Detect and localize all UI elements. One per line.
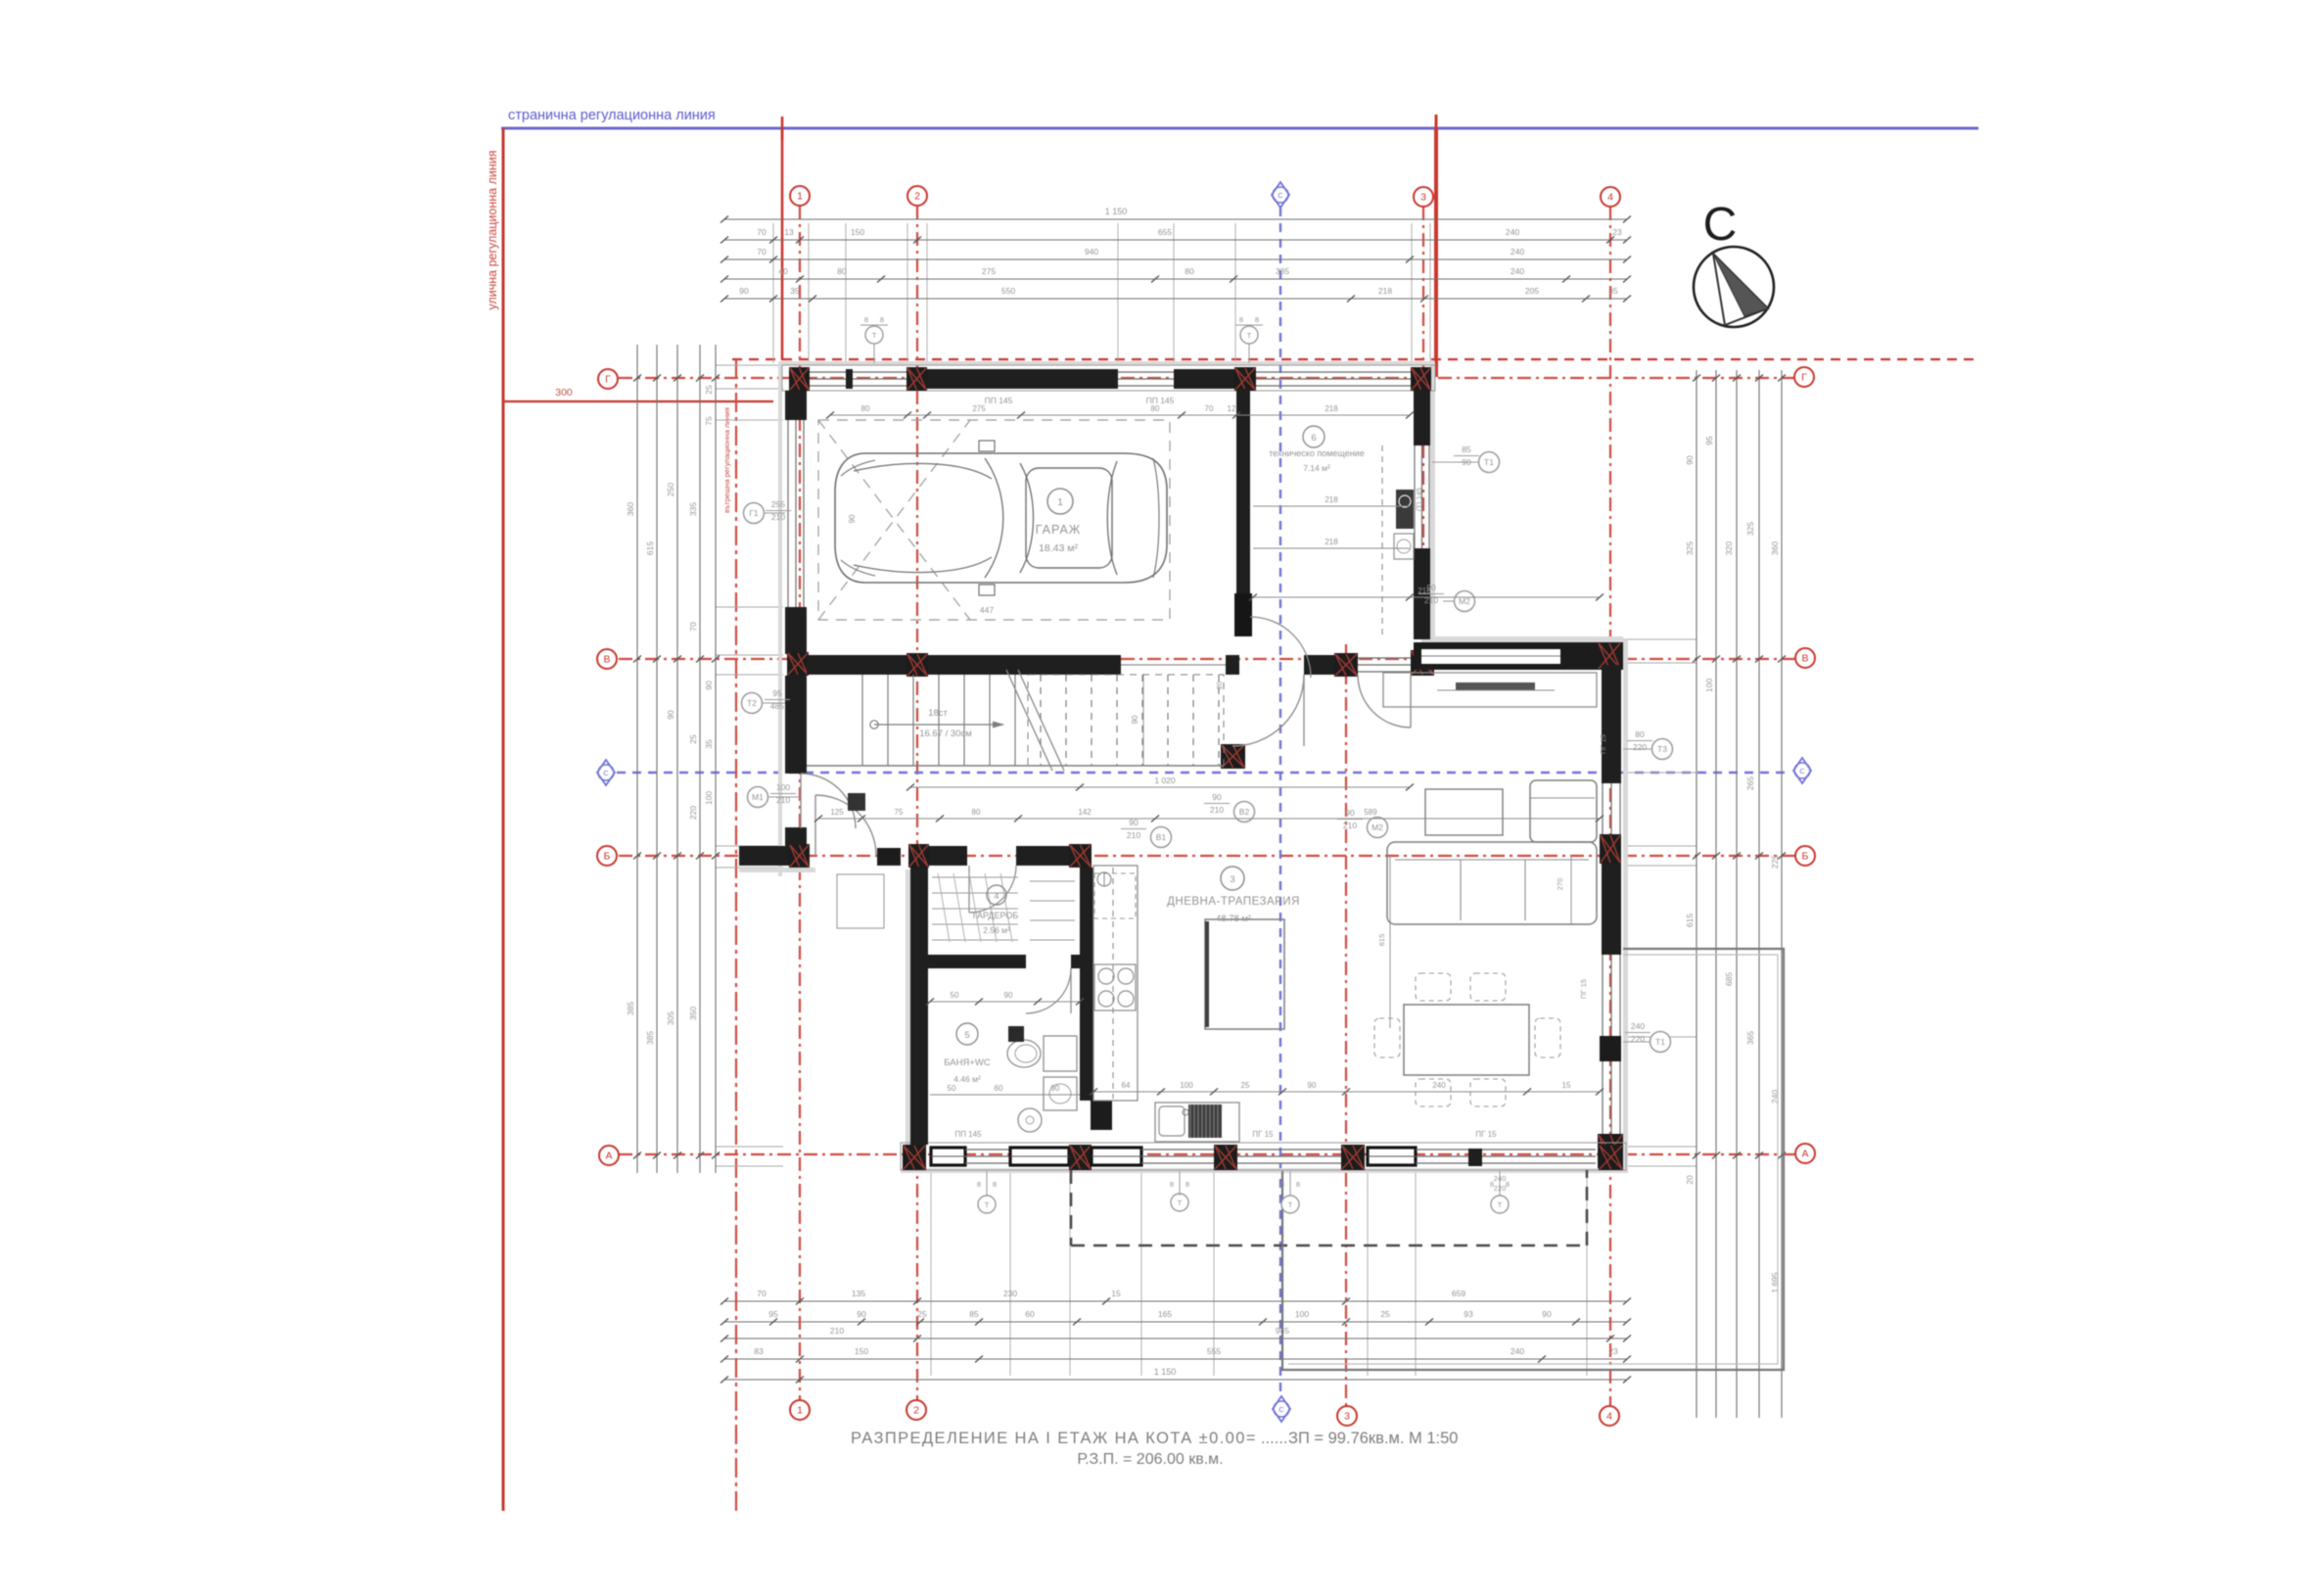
svg-text:16.67 / 30см: 16.67 / 30см [919, 728, 972, 739]
svg-text:659: 659 [1452, 1289, 1465, 1298]
svg-text:240: 240 [1506, 227, 1519, 237]
svg-text:210: 210 [1127, 830, 1140, 840]
svg-text:35: 35 [1608, 286, 1618, 296]
svg-text:80: 80 [837, 266, 847, 276]
svg-text:90: 90 [848, 514, 857, 523]
svg-text:4: 4 [1607, 192, 1613, 204]
svg-text:615: 615 [1685, 914, 1695, 927]
svg-text:3: 3 [1344, 1411, 1350, 1423]
svg-text:75: 75 [895, 808, 904, 817]
svg-text:А: А [1801, 1149, 1808, 1160]
svg-text:70: 70 [757, 1289, 767, 1298]
svg-text:60: 60 [995, 1084, 1003, 1093]
svg-text:8: 8 [880, 315, 884, 324]
svg-text:В2: В2 [1239, 807, 1250, 817]
svg-text:техническо помещение: техническо помещение [1269, 448, 1364, 458]
svg-text:550: 550 [1001, 286, 1015, 296]
svg-text:ДНЕВНА-ТРАПЕЗАРИЯ: ДНЕВНА-ТРАПЕЗАРИЯ [1167, 896, 1300, 908]
svg-text:25: 25 [704, 385, 714, 395]
svg-text:ПП 145: ПП 145 [954, 1130, 982, 1139]
svg-text:8: 8 [864, 315, 868, 324]
svg-text:64: 64 [1122, 1081, 1131, 1090]
svg-text:210: 210 [1343, 821, 1357, 830]
svg-text:Т: Т [1178, 1198, 1183, 1207]
svg-text:Г: Г [605, 374, 611, 386]
svg-text:8: 8 [1239, 315, 1243, 324]
svg-text:8: 8 [993, 1180, 997, 1189]
svg-text:142: 142 [1078, 808, 1092, 817]
svg-text:218: 218 [1378, 286, 1392, 296]
svg-text:В1: В1 [1156, 832, 1167, 842]
svg-text:90: 90 [1212, 792, 1222, 802]
svg-text:70: 70 [688, 622, 698, 632]
svg-text:М2: М2 [1459, 596, 1470, 606]
svg-text:23: 23 [1612, 227, 1622, 237]
svg-text:240: 240 [1494, 1174, 1507, 1183]
svg-text:50: 50 [948, 1084, 956, 1093]
svg-text:Т: Т [1288, 1200, 1293, 1209]
svg-text:С: С [1278, 1405, 1284, 1414]
svg-text:325: 325 [1745, 522, 1755, 536]
svg-text:7.14 м²: 7.14 м² [1303, 463, 1330, 473]
svg-text:90: 90 [739, 286, 749, 296]
svg-text:270: 270 [1556, 878, 1564, 891]
svg-text:95: 95 [768, 1309, 778, 1319]
svg-text:ЗП = 99.76кв.м. М 1:50: ЗП = 99.76кв.м. М 1:50 [1288, 1430, 1458, 1447]
svg-text:80: 80 [1151, 404, 1160, 413]
svg-text:4.46 м²: 4.46 м² [953, 1074, 981, 1084]
svg-text:70: 70 [757, 247, 767, 257]
svg-text:90: 90 [1308, 1081, 1317, 1090]
svg-text:90: 90 [704, 681, 714, 690]
svg-text:20: 20 [1685, 1175, 1695, 1185]
svg-text:335: 335 [688, 502, 698, 516]
svg-text:275: 275 [982, 266, 996, 276]
svg-text:240: 240 [1432, 1081, 1446, 1090]
svg-text:20: 20 [1215, 681, 1224, 689]
svg-text:25: 25 [1380, 1309, 1390, 1319]
svg-text:2: 2 [914, 191, 920, 203]
svg-text:8: 8 [1296, 1180, 1300, 1189]
svg-text:1 150: 1 150 [1154, 1367, 1177, 1377]
svg-text:В: В [1801, 653, 1808, 665]
svg-text:218: 218 [1418, 587, 1431, 595]
svg-text:ГАРАЖ: ГАРАЖ [1036, 523, 1082, 537]
svg-text:2: 2 [913, 1405, 919, 1417]
svg-text:48.78 м²: 48.78 м² [1216, 914, 1251, 924]
svg-text:15: 15 [1111, 1289, 1121, 1298]
svg-text:230: 230 [1003, 1289, 1017, 1298]
svg-text:240: 240 [1631, 1021, 1645, 1031]
svg-text:150: 150 [851, 227, 864, 237]
svg-text:365: 365 [1745, 1031, 1755, 1045]
svg-text:220: 220 [1633, 742, 1647, 752]
svg-text:25: 25 [1241, 1081, 1250, 1090]
svg-text:90: 90 [666, 710, 675, 720]
svg-text:250: 250 [666, 483, 675, 496]
svg-text:555: 555 [1207, 1346, 1221, 1356]
svg-text:360: 360 [1770, 541, 1780, 555]
svg-text:Т: Т [1498, 1200, 1503, 1209]
svg-text:улична регулационна линия: улична регулационна линия [486, 150, 499, 309]
svg-text:25: 25 [917, 1309, 927, 1319]
svg-text:13: 13 [784, 227, 794, 237]
svg-text:С: С [603, 769, 609, 777]
svg-text:35: 35 [704, 739, 714, 749]
svg-text:90: 90 [1004, 991, 1013, 1000]
svg-text:5: 5 [964, 1030, 969, 1041]
svg-text:225: 225 [1770, 855, 1780, 868]
svg-text:940: 940 [1085, 247, 1098, 257]
svg-text:1 020: 1 020 [1154, 775, 1176, 785]
svg-text:8: 8 [1170, 1180, 1174, 1189]
svg-text:210: 210 [1424, 595, 1438, 605]
svg-text:1: 1 [797, 1405, 803, 1417]
svg-text:60: 60 [1025, 1309, 1035, 1319]
svg-text:23: 23 [1608, 1346, 1618, 1356]
svg-text:С: С [1799, 767, 1805, 775]
svg-text:100: 100 [1704, 679, 1714, 692]
svg-text:615: 615 [1377, 934, 1386, 947]
svg-text:255: 255 [771, 499, 785, 509]
svg-text:ПП 145: ПП 145 [985, 396, 1013, 405]
svg-text:385: 385 [626, 1002, 635, 1015]
svg-text:220: 220 [1494, 1184, 1507, 1193]
svg-text:ПГ 15: ПГ 15 [1579, 979, 1588, 999]
svg-text:240: 240 [1511, 247, 1524, 257]
svg-text:240: 240 [1511, 266, 1524, 276]
svg-text:447: 447 [980, 605, 994, 615]
svg-text:25: 25 [688, 734, 698, 744]
svg-text:12: 12 [1228, 404, 1236, 413]
svg-text:Б: Б [604, 851, 611, 863]
svg-text:93: 93 [1464, 1309, 1473, 1319]
svg-text:320: 320 [1724, 541, 1734, 555]
svg-text:325: 325 [1685, 541, 1695, 555]
svg-text:40: 40 [778, 266, 788, 276]
svg-text:85: 85 [1462, 445, 1471, 454]
svg-text:90: 90 [1542, 1309, 1552, 1319]
svg-text:165: 165 [1158, 1309, 1172, 1319]
svg-text:Г1: Г1 [749, 508, 759, 518]
svg-text:100: 100 [1180, 1081, 1193, 1090]
svg-text:Т: Т [985, 1200, 990, 1209]
svg-text:90: 90 [1129, 818, 1139, 827]
svg-text:1: 1 [1057, 496, 1063, 508]
svg-text:ПГ 15: ПГ 15 [1475, 1130, 1497, 1139]
svg-text:655: 655 [1158, 227, 1172, 237]
svg-text:4: 4 [1606, 1411, 1612, 1423]
svg-text:90: 90 [1345, 808, 1355, 818]
svg-text:РАЗПРЕДЕЛЕНИЕ НА I ЕТАЖ НА КОТ: РАЗПРЕДЕЛЕНИЕ НА I ЕТАЖ НА КОТА ±0.00= [851, 1430, 1257, 1447]
svg-text:218: 218 [1325, 404, 1338, 413]
svg-text:Т2: Т2 [747, 698, 757, 708]
svg-text:3: 3 [1230, 874, 1234, 885]
svg-text:100: 100 [776, 782, 790, 792]
svg-text:Р.З.П. = 206.00 кв.м.: Р.З.П. = 206.00 кв.м. [1077, 1451, 1223, 1468]
svg-text:странична регулационна линия: странична регулационна линия [508, 108, 716, 123]
svg-text:275: 275 [972, 404, 986, 413]
svg-text:615: 615 [645, 541, 655, 555]
svg-text:83: 83 [754, 1346, 764, 1356]
svg-text:100: 100 [1295, 1309, 1309, 1319]
svg-text:125: 125 [830, 808, 844, 817]
svg-text:218: 218 [1325, 538, 1338, 546]
svg-text:М1: М1 [752, 792, 764, 802]
svg-text:Т3: Т3 [1657, 744, 1667, 754]
svg-text:205: 205 [1525, 286, 1539, 296]
svg-text:БАНЯ+WC: БАНЯ+WC [944, 1057, 991, 1068]
svg-text:100: 100 [704, 791, 714, 805]
svg-text:С: С [1703, 199, 1738, 251]
svg-text:Т: Т [1247, 331, 1252, 340]
svg-text:С: С [1278, 191, 1283, 200]
svg-text:80: 80 [972, 808, 981, 817]
svg-text:90: 90 [1685, 455, 1695, 465]
svg-text:80: 80 [861, 404, 870, 413]
svg-text:4: 4 [994, 891, 999, 901]
svg-text:75: 75 [704, 416, 714, 426]
svg-text:8: 8 [1255, 315, 1259, 324]
svg-text:90: 90 [1051, 1084, 1060, 1093]
svg-text:135: 135 [852, 1289, 865, 1298]
svg-text:18ст: 18ст [928, 708, 948, 719]
svg-text:ПГ 15: ПГ 15 [1252, 1130, 1274, 1139]
svg-text:Т1: Т1 [1655, 1037, 1665, 1047]
svg-text:360: 360 [626, 502, 635, 516]
svg-text:8: 8 [1506, 1180, 1510, 1189]
svg-text:90: 90 [857, 1309, 866, 1319]
svg-text:300: 300 [555, 387, 573, 399]
svg-text:......: ...... [1261, 1430, 1288, 1447]
svg-text:150: 150 [855, 1346, 868, 1356]
svg-text:265: 265 [1745, 776, 1755, 790]
svg-text:80: 80 [1185, 266, 1194, 276]
svg-text:2.56 м²: 2.56 м² [983, 925, 1010, 935]
svg-text:Т1: Т1 [1484, 457, 1494, 467]
svg-text:240: 240 [1511, 1346, 1524, 1356]
svg-text:335: 335 [1276, 266, 1289, 276]
svg-text:18.43 м²: 18.43 м² [1039, 542, 1078, 554]
svg-text:8: 8 [977, 1180, 981, 1189]
svg-text:8: 8 [1280, 1180, 1284, 1189]
svg-text:8: 8 [1185, 1180, 1189, 1189]
svg-text:1 150: 1 150 [1105, 207, 1128, 216]
svg-text:685: 685 [1724, 972, 1734, 986]
svg-text:6: 6 [1311, 433, 1316, 444]
svg-text:Т: Т [872, 331, 877, 340]
svg-text:Б: Б [1802, 851, 1809, 863]
svg-text:95: 95 [1704, 436, 1714, 446]
svg-text:ГАРДЕРОБ: ГАРДЕРОБ [973, 911, 1019, 920]
svg-text:В: В [603, 654, 610, 666]
svg-text:70: 70 [757, 227, 767, 237]
svg-text:3: 3 [1420, 192, 1426, 204]
svg-text:50: 50 [951, 991, 959, 1000]
svg-text:80: 80 [1635, 729, 1645, 739]
svg-text:М2: М2 [1371, 822, 1383, 832]
svg-text:(Т) 145: (Т) 145 [1415, 488, 1423, 511]
svg-text:15: 15 [1562, 1081, 1571, 1090]
svg-text:70: 70 [1205, 404, 1214, 413]
svg-text:ПГ 15: ПГ 15 [1599, 734, 1607, 754]
svg-text:вътрешна регулационна линия: вътрешна регулационна линия [722, 407, 731, 513]
svg-text:90: 90 [1131, 715, 1139, 724]
svg-text:35: 35 [790, 286, 800, 296]
svg-text:305: 305 [666, 1011, 675, 1025]
svg-text:218: 218 [1325, 495, 1338, 504]
svg-text:385: 385 [645, 1031, 655, 1045]
svg-text:210: 210 [1210, 805, 1224, 815]
svg-text:210: 210 [830, 1326, 844, 1336]
svg-text:А: А [605, 1150, 612, 1162]
svg-text:Г: Г [1801, 372, 1807, 384]
svg-text:350: 350 [688, 1007, 698, 1020]
svg-text:589: 589 [1364, 808, 1377, 817]
svg-text:220: 220 [688, 806, 698, 820]
svg-text:95: 95 [772, 688, 782, 698]
svg-text:85: 85 [969, 1309, 979, 1319]
svg-text:1: 1 [797, 191, 803, 203]
